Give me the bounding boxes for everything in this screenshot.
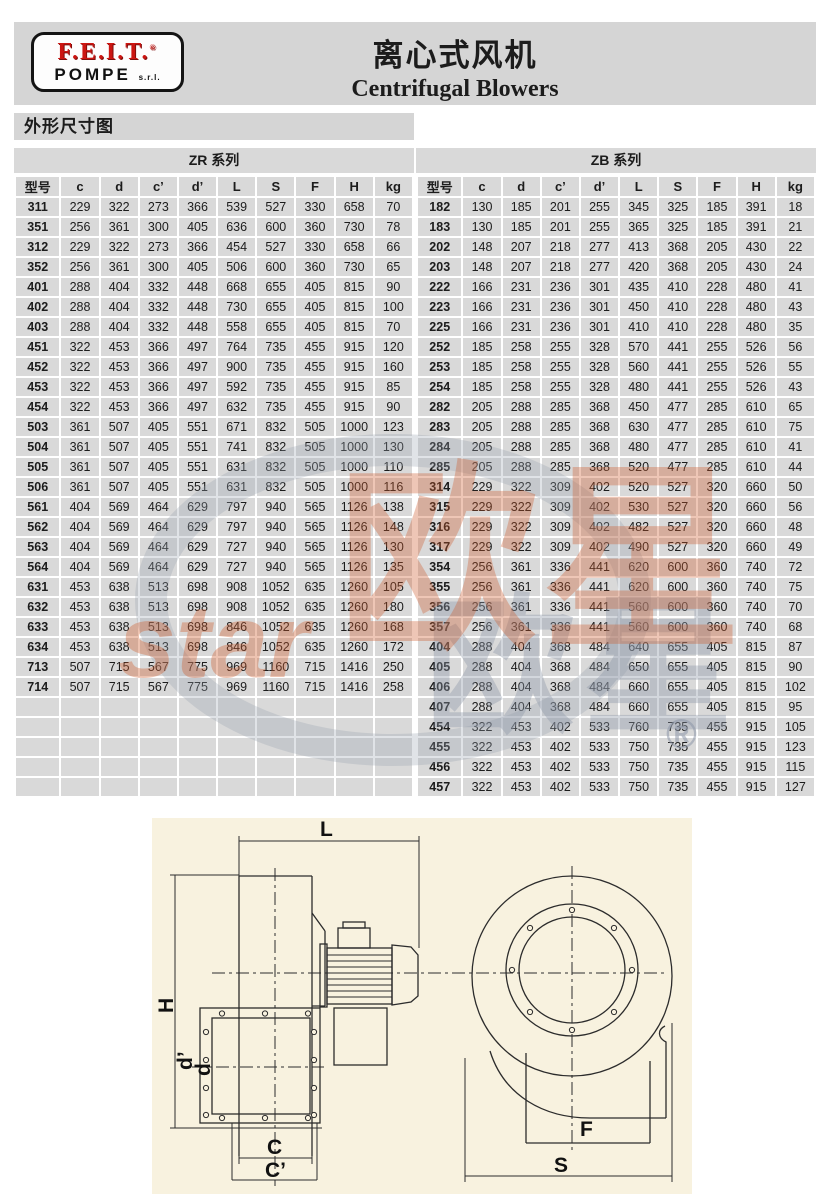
value-cell: 527 xyxy=(659,498,696,516)
value-cell: 655 xyxy=(257,278,294,296)
value-cell: 404 xyxy=(503,658,540,676)
value-cell: 123 xyxy=(777,738,814,756)
value-cell: 727 xyxy=(218,558,255,576)
value-cell: 285 xyxy=(698,458,735,476)
value-cell: 497 xyxy=(179,398,216,416)
value-cell: 66 xyxy=(375,238,412,256)
value-cell: 533 xyxy=(581,758,618,776)
value-cell: 490 xyxy=(620,538,657,556)
value-cell: 285 xyxy=(542,418,579,436)
value-cell: 1126 xyxy=(336,518,373,536)
value-cell: 336 xyxy=(542,578,579,596)
value-cell: 455 xyxy=(296,338,333,356)
model-cell: 314 xyxy=(418,478,461,496)
value-cell xyxy=(375,778,412,796)
value-cell: 405 xyxy=(698,698,735,716)
value-cell: 655 xyxy=(659,638,696,656)
value-cell: 405 xyxy=(296,278,333,296)
value-cell: 404 xyxy=(61,498,98,516)
model-cell: 455 xyxy=(418,738,461,756)
value-cell: 368 xyxy=(581,438,618,456)
zr-header-row: 型号cdc’d’LSFHkg xyxy=(16,177,412,196)
value-cell: 65 xyxy=(375,258,412,276)
model-cell: 401 xyxy=(16,278,59,296)
value-cell: 441 xyxy=(659,378,696,396)
registered-mark-icon: ® xyxy=(150,43,158,52)
value-cell: 361 xyxy=(61,478,98,496)
value-cell: 497 xyxy=(179,338,216,356)
value-cell: 255 xyxy=(542,358,579,376)
value-cell: 740 xyxy=(738,618,775,636)
value-cell: 229 xyxy=(463,498,500,516)
value-cell: 1052 xyxy=(257,578,294,596)
value-cell: 441 xyxy=(581,558,618,576)
model-cell: 633 xyxy=(16,618,59,636)
value-cell: 600 xyxy=(659,578,696,596)
value-cell: 832 xyxy=(257,438,294,456)
value-cell: 360 xyxy=(698,618,735,636)
value-cell: 43 xyxy=(777,298,814,316)
value-cell: 330 xyxy=(296,198,333,216)
value-cell: 815 xyxy=(336,278,373,296)
value-cell: 455 xyxy=(698,718,735,736)
value-cell: 569 xyxy=(101,518,138,536)
value-cell: 454 xyxy=(218,238,255,256)
table-row: 25418525825532848044125552643 xyxy=(418,378,814,396)
value-cell: 600 xyxy=(659,598,696,616)
value-cell: 75 xyxy=(777,578,814,596)
table-row: 20314820721827742036820543024 xyxy=(418,258,814,276)
value-cell: 180 xyxy=(375,598,412,616)
table-row: 35625636133644156060036074070 xyxy=(418,598,814,616)
value-cell: 1416 xyxy=(336,658,373,676)
model-cell: 452 xyxy=(16,358,59,376)
value-cell: 448 xyxy=(179,298,216,316)
value-cell: 404 xyxy=(503,698,540,716)
value-cell xyxy=(179,698,216,716)
model-cell: 357 xyxy=(418,618,461,636)
value-cell: 229 xyxy=(463,478,500,496)
label-d: d xyxy=(192,1063,215,1076)
value-cell: 404 xyxy=(61,558,98,576)
column-header: kg xyxy=(375,177,412,196)
value-cell: 402 xyxy=(581,478,618,496)
value-cell: 322 xyxy=(61,378,98,396)
value-cell: 405 xyxy=(140,458,177,476)
value-cell: 332 xyxy=(140,298,177,316)
value-cell: 336 xyxy=(542,598,579,616)
value-cell xyxy=(336,758,373,776)
model-cell: 456 xyxy=(418,758,461,776)
value-cell: 322 xyxy=(503,498,540,516)
table-row: 71450771556777596911607151416258 xyxy=(16,678,412,696)
model-cell: 285 xyxy=(418,458,461,476)
value-cell: 551 xyxy=(179,438,216,456)
table-row: 454322453402533760735455915105 xyxy=(418,718,814,736)
table-row: 22316623123630145041022848043 xyxy=(418,298,814,316)
value-cell: 569 xyxy=(101,538,138,556)
value-cell: 940 xyxy=(257,498,294,516)
value-cell: 391 xyxy=(738,198,775,216)
table-row: 20214820721827741336820543022 xyxy=(418,238,814,256)
value-cell: 482 xyxy=(620,518,657,536)
value-cell: 513 xyxy=(140,618,177,636)
value-cell: 715 xyxy=(101,658,138,676)
value-cell: 325 xyxy=(659,198,696,216)
value-cell: 309 xyxy=(542,478,579,496)
value-cell: 629 xyxy=(179,558,216,576)
value-cell: 336 xyxy=(542,618,579,636)
value-cell: 127 xyxy=(777,778,814,796)
value-cell: 453 xyxy=(101,358,138,376)
value-cell: 288 xyxy=(61,278,98,296)
value-cell: 569 xyxy=(101,558,138,576)
value-cell xyxy=(296,698,333,716)
value-cell: 775 xyxy=(179,658,216,676)
value-cell: 288 xyxy=(463,638,500,656)
table-row: 25318525825532856044125552655 xyxy=(418,358,814,376)
value-cell: 441 xyxy=(581,598,618,616)
value-cell: 730 xyxy=(336,258,373,276)
value-cell: 185 xyxy=(463,358,500,376)
value-cell: 453 xyxy=(503,738,540,756)
value-cell: 660 xyxy=(738,538,775,556)
value-cell: 915 xyxy=(738,758,775,776)
value-cell: 453 xyxy=(503,758,540,776)
value-cell: 205 xyxy=(463,418,500,436)
value-cell: 638 xyxy=(101,578,138,596)
value-cell: 908 xyxy=(218,598,255,616)
zr-series-title: ZR 系列 xyxy=(14,148,414,173)
value-cell: 405 xyxy=(698,678,735,696)
value-cell: 405 xyxy=(140,418,177,436)
value-cell: 361 xyxy=(61,438,98,456)
value-cell: 130 xyxy=(463,218,500,236)
value-cell: 715 xyxy=(296,658,333,676)
value-cell: 1260 xyxy=(336,598,373,616)
value-cell: 301 xyxy=(581,298,618,316)
value-cell: 567 xyxy=(140,678,177,696)
value-cell xyxy=(179,778,216,796)
zb-header-row: 型号cdc’d’LSFHkg xyxy=(418,177,814,196)
diagram-labels: L H d’ d C C’ F S xyxy=(155,818,593,1182)
value-cell: 328 xyxy=(581,338,618,356)
side-view xyxy=(170,836,419,1180)
document-titles: 离心式风机 Centrifugal Blowers xyxy=(194,22,716,103)
value-cell: 288 xyxy=(463,678,500,696)
value-cell: 610 xyxy=(738,458,775,476)
value-cell: 218 xyxy=(542,238,579,256)
logo-subtext: POMPE s.r.l. xyxy=(34,64,181,86)
value-cell: 110 xyxy=(375,458,412,476)
value-cell: 309 xyxy=(542,538,579,556)
value-cell: 185 xyxy=(698,218,735,236)
value-cell: 102 xyxy=(777,678,814,696)
value-cell: 915 xyxy=(336,398,373,416)
value-cell: 405 xyxy=(296,318,333,336)
column-header: c’ xyxy=(140,177,177,196)
value-cell: 1052 xyxy=(257,638,294,656)
model-cell: 631 xyxy=(16,578,59,596)
value-cell: 448 xyxy=(179,318,216,336)
value-cell: 660 xyxy=(738,498,775,516)
value-cell: 78 xyxy=(375,218,412,236)
value-cell: 513 xyxy=(140,638,177,656)
value-cell: 320 xyxy=(698,478,735,496)
value-cell: 218 xyxy=(542,258,579,276)
value-cell: 441 xyxy=(581,578,618,596)
value-cell: 505 xyxy=(296,458,333,476)
value-cell: 797 xyxy=(218,518,255,536)
model-cell: 312 xyxy=(16,238,59,256)
value-cell: 815 xyxy=(738,638,775,656)
value-cell: 277 xyxy=(581,258,618,276)
model-cell: 284 xyxy=(418,438,461,456)
model-cell: 506 xyxy=(16,478,59,496)
value-cell: 410 xyxy=(659,298,696,316)
column-header: F xyxy=(296,177,333,196)
table-row: 406288404368484660655405815102 xyxy=(418,678,814,696)
value-cell: 56 xyxy=(777,338,814,356)
table-row: 63345363851369884610526351260168 xyxy=(16,618,412,636)
value-cell: 513 xyxy=(140,598,177,616)
value-cell: 100 xyxy=(375,298,412,316)
model-cell: 283 xyxy=(418,418,461,436)
table-row: 63245363851369890810526351260180 xyxy=(16,598,412,616)
value-cell: 90 xyxy=(375,278,412,296)
value-cell: 969 xyxy=(218,658,255,676)
value-cell: 402 xyxy=(581,538,618,556)
value-cell: 410 xyxy=(659,318,696,336)
value-cell: 632 xyxy=(218,398,255,416)
value-cell: 288 xyxy=(503,398,540,416)
model-cell: 403 xyxy=(16,318,59,336)
table-row: 40728840436848466065540581595 xyxy=(418,698,814,716)
value-cell: 366 xyxy=(140,358,177,376)
model-cell: 352 xyxy=(16,258,59,276)
value-cell xyxy=(140,738,177,756)
value-cell: 940 xyxy=(257,538,294,556)
value-cell xyxy=(257,758,294,776)
value-cell xyxy=(179,738,216,756)
model-cell: 316 xyxy=(418,518,461,536)
table-row: 18213018520125534532518539118 xyxy=(418,198,814,216)
model-cell: 713 xyxy=(16,658,59,676)
value-cell: 477 xyxy=(659,438,696,456)
value-cell: 815 xyxy=(738,698,775,716)
value-cell: 450 xyxy=(620,298,657,316)
value-cell: 455 xyxy=(698,738,735,756)
value-cell: 638 xyxy=(101,618,138,636)
table-row: 5063615074055516318325051000116 xyxy=(16,478,412,496)
value-cell: 660 xyxy=(738,518,775,536)
value-cell: 453 xyxy=(503,778,540,796)
model-cell: 225 xyxy=(418,318,461,336)
table-row: 31722932230940249052732066049 xyxy=(418,538,814,556)
value-cell: 322 xyxy=(503,518,540,536)
model-cell: 182 xyxy=(418,198,461,216)
value-cell: 256 xyxy=(61,258,98,276)
value-cell xyxy=(375,718,412,736)
column-header: kg xyxy=(777,177,814,196)
value-cell: 130 xyxy=(375,438,412,456)
value-cell: 735 xyxy=(257,338,294,356)
value-cell: 430 xyxy=(738,238,775,256)
value-cell: 41 xyxy=(777,278,814,296)
value-cell: 698 xyxy=(179,578,216,596)
table-row xyxy=(16,698,412,716)
label-S: S xyxy=(554,1154,568,1177)
value-cell xyxy=(61,718,98,736)
table-row: 455322453402533750735455915123 xyxy=(418,738,814,756)
value-cell: 1260 xyxy=(336,578,373,596)
value-cell: 635 xyxy=(296,618,333,636)
dimension-diagram-panel: L H d’ d C C’ F S xyxy=(152,818,692,1194)
value-cell: 430 xyxy=(738,258,775,276)
value-cell: 322 xyxy=(101,238,138,256)
value-cell: 455 xyxy=(698,758,735,776)
column-header: L xyxy=(218,177,255,196)
logo-pompe-text: POMPE xyxy=(54,65,130,84)
model-cell: 564 xyxy=(16,558,59,576)
table-row: 45332245336649759273545591585 xyxy=(16,378,412,396)
value-cell: 322 xyxy=(503,538,540,556)
value-cell: 166 xyxy=(463,278,500,296)
value-cell: 453 xyxy=(61,638,98,656)
value-cell: 505 xyxy=(296,438,333,456)
value-cell: 404 xyxy=(61,538,98,556)
value-cell: 309 xyxy=(542,498,579,516)
value-cell: 567 xyxy=(140,658,177,676)
model-cell: 351 xyxy=(16,218,59,236)
value-cell: 638 xyxy=(101,638,138,656)
value-cell: 484 xyxy=(581,678,618,696)
value-cell xyxy=(61,698,98,716)
value-cell: 480 xyxy=(620,378,657,396)
table-row: 35725636133644156060036074068 xyxy=(418,618,814,636)
value-cell: 285 xyxy=(542,398,579,416)
value-cell: 115 xyxy=(777,758,814,776)
value-cell: 320 xyxy=(698,518,735,536)
value-cell: 668 xyxy=(218,278,255,296)
value-cell: 735 xyxy=(257,398,294,416)
value-cell: 322 xyxy=(503,478,540,496)
value-cell: 404 xyxy=(101,318,138,336)
model-cell: 563 xyxy=(16,538,59,556)
value-cell: 228 xyxy=(698,278,735,296)
value-cell: 402 xyxy=(542,758,579,776)
value-cell: 797 xyxy=(218,498,255,516)
value-cell: 1000 xyxy=(336,458,373,476)
value-cell: 361 xyxy=(503,598,540,616)
value-cell: 87 xyxy=(777,638,814,656)
value-cell: 301 xyxy=(581,318,618,336)
value-cell xyxy=(140,758,177,776)
value-cell xyxy=(61,758,98,776)
value-cell: 815 xyxy=(738,658,775,676)
value-cell: 300 xyxy=(140,258,177,276)
value-cell: 288 xyxy=(503,438,540,456)
table-row: 31122932227336653952733065870 xyxy=(16,198,412,216)
value-cell: 570 xyxy=(620,338,657,356)
value-cell: 520 xyxy=(620,458,657,476)
value-cell: 368 xyxy=(542,698,579,716)
table-row xyxy=(16,758,412,776)
value-cell: 464 xyxy=(140,538,177,556)
value-cell: 285 xyxy=(542,438,579,456)
table-row: 31622932230940248252732066048 xyxy=(418,518,814,536)
value-cell: 477 xyxy=(659,398,696,416)
table-row: 31422932230940252052732066050 xyxy=(418,478,814,496)
value-cell: 368 xyxy=(542,678,579,696)
value-cell: 660 xyxy=(620,698,657,716)
value-cell: 300 xyxy=(140,218,177,236)
value-cell: 404 xyxy=(503,638,540,656)
value-cell: 285 xyxy=(698,398,735,416)
value-cell: 629 xyxy=(179,518,216,536)
value-cell: 322 xyxy=(463,778,500,796)
value-cell: 229 xyxy=(61,198,98,216)
value-cell: 256 xyxy=(463,598,500,616)
value-cell: 815 xyxy=(738,678,775,696)
value-cell: 120 xyxy=(375,338,412,356)
value-cell: 635 xyxy=(296,598,333,616)
value-cell: 366 xyxy=(140,338,177,356)
value-cell: 172 xyxy=(375,638,412,656)
value-cell: 969 xyxy=(218,678,255,696)
value-cell: 1000 xyxy=(336,478,373,496)
value-cell: 915 xyxy=(336,358,373,376)
model-cell: 354 xyxy=(418,558,461,576)
table-row: 402288404332448730655405815100 xyxy=(16,298,412,316)
value-cell: 735 xyxy=(257,378,294,396)
value-cell: 201 xyxy=(542,218,579,236)
table-row: 31222932227336645452733065866 xyxy=(16,238,412,256)
value-cell: 735 xyxy=(659,758,696,776)
value-cell: 366 xyxy=(179,198,216,216)
value-cell: 168 xyxy=(375,618,412,636)
value-cell: 70 xyxy=(375,318,412,336)
value-cell: 288 xyxy=(463,658,500,676)
value-cell: 507 xyxy=(61,658,98,676)
model-cell: 451 xyxy=(16,338,59,356)
label-C-prime: C’ xyxy=(265,1159,286,1182)
model-cell: 355 xyxy=(418,578,461,596)
value-cell xyxy=(101,718,138,736)
value-cell: 410 xyxy=(659,278,696,296)
value-cell: 1260 xyxy=(336,638,373,656)
table-row: 22516623123630141041022848035 xyxy=(418,318,814,336)
model-cell: 405 xyxy=(418,658,461,676)
value-cell: 360 xyxy=(698,558,735,576)
model-cell: 203 xyxy=(418,258,461,276)
value-cell: 464 xyxy=(140,518,177,536)
model-cell: 632 xyxy=(16,598,59,616)
model-cell: 282 xyxy=(418,398,461,416)
value-cell xyxy=(218,718,255,736)
value-cell: 527 xyxy=(257,238,294,256)
value-cell: 72 xyxy=(777,558,814,576)
value-cell: 236 xyxy=(542,298,579,316)
value-cell: 655 xyxy=(257,318,294,336)
value-cell: 229 xyxy=(61,238,98,256)
value-cell: 640 xyxy=(620,638,657,656)
model-cell: 254 xyxy=(418,378,461,396)
value-cell: 507 xyxy=(101,418,138,436)
model-cell: 454 xyxy=(418,718,461,736)
value-cell: 231 xyxy=(503,298,540,316)
dimension-tables: ZR 系列 型号cdc’d’LSFHkg 3112293222733665395… xyxy=(14,148,816,798)
